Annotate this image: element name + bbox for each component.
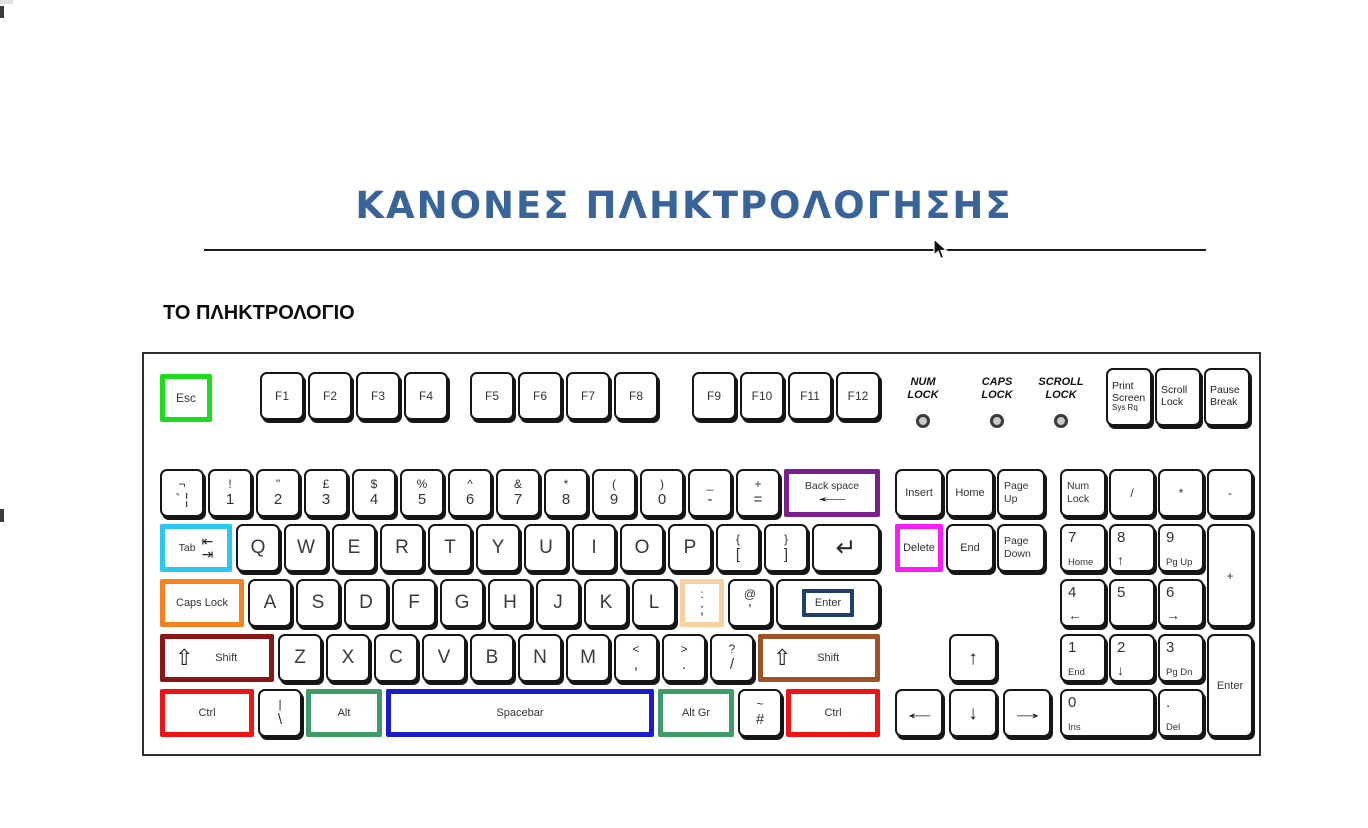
key-5: %5 (400, 469, 444, 517)
key-numpad-4: 4← (1060, 579, 1106, 627)
key-numpad-multiply: * (1158, 469, 1204, 517)
keyboard-diagram: Esc F1F2F3F4 F5F6F7F8 F9F10F11F12 NUMLOC… (142, 352, 1261, 756)
key-semicolon: :; (680, 579, 724, 627)
key-right-shift: ⇧Shift (758, 634, 880, 682)
shift-arrow-icon: ⇧ (175, 647, 193, 669)
enter-highlight-box: Enter (802, 589, 854, 617)
key-p: P (668, 524, 712, 572)
title-underline (204, 249, 1206, 251)
key-hash: ~# (738, 689, 782, 737)
section-heading: ΤΟ ΠΛΗΚΤΡΟΛΟΓΙΟ (163, 302, 355, 325)
number-row: ¬` ¦!1"2£3$4%5^6&7*8(9)0_-+=Back space← (160, 469, 880, 517)
key-f: F (392, 579, 436, 627)
key-period: >. (662, 634, 706, 682)
key-0: )0 (640, 469, 684, 517)
key-print-screen: PrintScreenSys Rq (1106, 368, 1152, 426)
key-numpad-divide: / (1109, 469, 1155, 517)
key-u: U (524, 524, 568, 572)
key-9: (9 (592, 469, 636, 517)
key-right-bracket: }] (764, 524, 808, 572)
key-page-down: PageDown (997, 524, 1045, 572)
key-k: K (584, 579, 628, 627)
key-g: G (440, 579, 484, 627)
key-tab: Tab⇤⇥ (160, 524, 232, 572)
screen-edge-artifact (0, 509, 4, 522)
key-numpad-6: 6→ (1158, 579, 1204, 627)
key-z: Z (278, 634, 322, 682)
key-q: Q (236, 524, 280, 572)
key-y: Y (476, 524, 520, 572)
key-spacebar: Spacebar (386, 689, 654, 737)
backspace-arrow-icon: ← (810, 491, 855, 505)
key-f9: F9 (692, 372, 736, 420)
key-f7: F7 (566, 372, 610, 420)
key-1: !1 (208, 469, 252, 517)
key-l: L (632, 579, 676, 627)
key-pause-break: PauseBreak (1204, 368, 1250, 426)
key-caps-lock: Caps Lock (160, 579, 244, 627)
key-numpad-enter: Enter (1207, 634, 1253, 737)
num-lock-indicator: NUMLOCK (896, 376, 950, 428)
key-numpad-7: 7Home (1060, 524, 1106, 572)
nav-row-1: InsertHomePageUp (895, 469, 1045, 517)
key-comma: <, (614, 634, 658, 682)
key-2: "2 (256, 469, 300, 517)
key-enter: Enter (776, 579, 880, 627)
key-f8: F8 (614, 372, 658, 420)
arrow-icon: ← (901, 704, 937, 723)
key-backspace: Back space← (784, 469, 880, 517)
key-numpad-5: 5 (1109, 579, 1155, 627)
page-title: ΚΑΝΟΝΕΣ ΠΛΗΚΤΡΟΛΟΓΗΣΗΣ (0, 184, 1368, 227)
key-left-shift: ⇧Shift (160, 634, 274, 682)
key-numpad-3: 3Pg Dn (1158, 634, 1204, 682)
screen-edge-artifact (0, 6, 4, 18)
home-row: Caps LockASDFGHJKL:;@'Enter (160, 579, 880, 627)
key-f6: F6 (518, 372, 562, 420)
key-page-up: PageUp (997, 469, 1045, 517)
key-right-ctrl: Ctrl (786, 689, 880, 737)
key-r: R (380, 524, 424, 572)
key-m: M (566, 634, 610, 682)
key-f12: F12 (836, 372, 880, 420)
caps-lock-indicator: CAPSLOCK (968, 376, 1026, 428)
key-f4: F4 (404, 372, 448, 420)
key-arrow-down: ↓ (949, 689, 997, 737)
key-insert: Insert (895, 469, 943, 517)
scroll-lock-led (1054, 414, 1068, 428)
arrow-icon: ↑ (968, 649, 978, 668)
key-numpad-2: 2↓ (1109, 634, 1155, 682)
function-key-group-2: F5F6F7F8 (470, 372, 658, 420)
document-page: ΚΑΝΟΝΕΣ ΠΛΗΚΤΡΟΛΟΓΗΣΗΣ ΤΟ ΠΛΗΚΤΡΟΛΟΓΙΟ E… (0, 0, 1368, 828)
key-c: C (374, 634, 418, 682)
function-key-group-1: F1F2F3F4 (260, 372, 448, 420)
key-numpad-decimal: .Del (1158, 689, 1204, 737)
key-minus: _- (688, 469, 732, 517)
key-3: £3 (304, 469, 348, 517)
key-numpad-1: 1End (1060, 634, 1106, 682)
key-b: B (470, 634, 514, 682)
key-return: ↵ (812, 524, 880, 572)
caps-lock-led (990, 414, 1004, 428)
system-key-group: PrintScreenSys RqScrollLockPauseBreak (1106, 368, 1250, 426)
tab-arrows-icon: ⇤⇥ (202, 535, 214, 562)
key-w: W (284, 524, 328, 572)
key-d: D (344, 579, 388, 627)
key-f5: F5 (470, 372, 514, 420)
lock-indicators: NUMLOCKCAPSLOCKSCROLLLOCK (896, 376, 1094, 428)
key-f11: F11 (788, 372, 832, 420)
key-8: *8 (544, 469, 588, 517)
key-numpad-8: 8↑ (1109, 524, 1155, 572)
screen-edge-artifact (0, 0, 13, 4)
qwerty-row: Tab⇤⇥QWERTYUIOP{[}]↵ (160, 524, 880, 572)
mouse-cursor (933, 239, 949, 261)
key-arrow-left: ← (895, 689, 943, 737)
key-scroll-lock: ScrollLock (1155, 368, 1201, 426)
key-f2: F2 (308, 372, 352, 420)
key-7: &7 (496, 469, 540, 517)
key-e: E (332, 524, 376, 572)
key-numpad-plus: + (1207, 524, 1253, 627)
key-i: I (572, 524, 616, 572)
key-backslash: |\ (258, 689, 302, 737)
key-grave: ¬` ¦ (160, 469, 204, 517)
key-numpad-0: 0Ins (1060, 689, 1155, 737)
arrow-icon: ↓ (968, 704, 978, 723)
arrow-icon: → (1009, 704, 1045, 723)
key-home: Home (946, 469, 994, 517)
key-delete: Delete (895, 524, 943, 572)
key-esc: Esc (160, 374, 212, 422)
key-4: $4 (352, 469, 396, 517)
key-f3: F3 (356, 372, 400, 420)
function-key-group-3: F9F10F11F12 (692, 372, 880, 420)
key-left-ctrl: Ctrl (160, 689, 254, 737)
key-arrow-right: → (1003, 689, 1051, 737)
shift-row: ⇧ShiftZXCVBNM<,>.?/⇧Shift (160, 634, 880, 682)
numeric-keypad: NumLock/*-7Home8↑9Pg Up+4←56→1End2↓3Pg D… (1060, 469, 1253, 740)
key-6: ^6 (448, 469, 492, 517)
key-f10: F10 (740, 372, 784, 420)
key-n: N (518, 634, 562, 682)
num-lock-led (916, 414, 930, 428)
key-v: V (422, 634, 466, 682)
key-numpad-minus: - (1207, 469, 1253, 517)
key-j: J (536, 579, 580, 627)
key-h: H (488, 579, 532, 627)
shift-arrow-icon: ⇧ (773, 647, 791, 669)
key-s: S (296, 579, 340, 627)
key-end: End (946, 524, 994, 572)
key-apostrophe: @' (728, 579, 772, 627)
key-alt: Alt (306, 689, 382, 737)
bottom-row: Ctrl|\AltSpacebarAlt Gr~#Ctrl (160, 689, 880, 737)
key-left-bracket: {[ (716, 524, 760, 572)
return-arrow-icon: ↵ (836, 536, 857, 561)
escape-key-slot: Esc (160, 374, 212, 422)
nav-row-2: DeleteEndPageDown (895, 524, 1045, 572)
scroll-lock-indicator: SCROLLLOCK (1028, 376, 1094, 428)
key-x: X (326, 634, 370, 682)
arrow-key-row: ←↓→ (895, 689, 1051, 737)
arrow-up-slot: ↑ (949, 634, 997, 682)
key-a: A (248, 579, 292, 627)
key-arrow-up: ↑ (949, 634, 997, 682)
key-slash: ?/ (710, 634, 754, 682)
key-f1: F1 (260, 372, 304, 420)
key-numpad-9: 9Pg Up (1158, 524, 1204, 572)
key-num-lock: NumLock (1060, 469, 1106, 517)
key-o: O (620, 524, 664, 572)
key-alt-gr: Alt Gr (658, 689, 734, 737)
key-t: T (428, 524, 472, 572)
key-equals: += (736, 469, 780, 517)
